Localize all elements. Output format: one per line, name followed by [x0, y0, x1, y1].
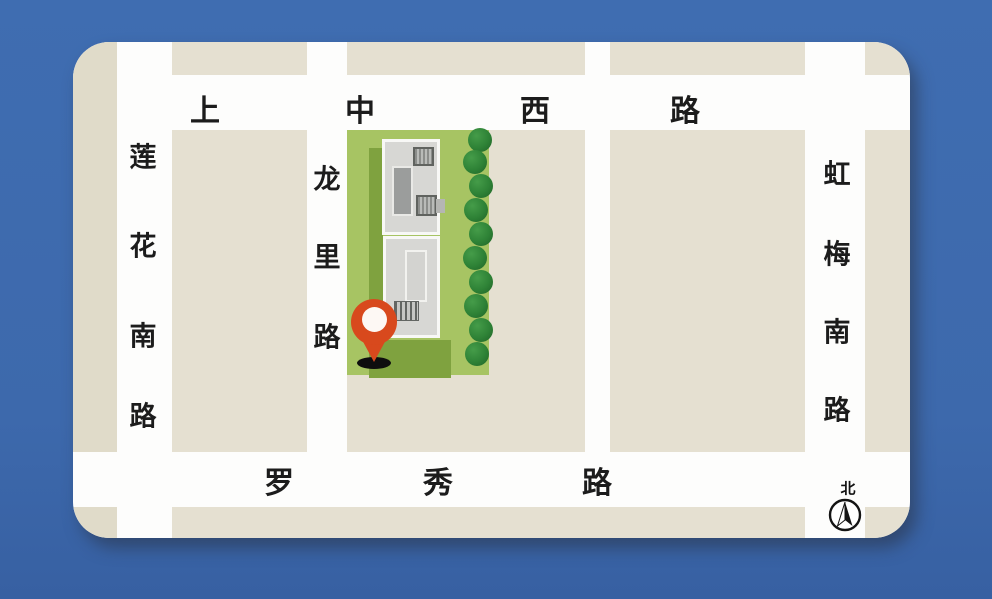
city-block — [172, 507, 805, 538]
page-background: 上 中 西 路 罗 秀 路 莲 花 南 路 龙 里 路 虹 梅 南 — [0, 0, 992, 599]
city-block — [610, 42, 805, 75]
compass-icon — [828, 498, 862, 532]
rooftop-structure — [405, 250, 427, 302]
road-char: 路 — [130, 395, 157, 434]
road-char: 路 — [824, 389, 851, 428]
road-char: 里 — [314, 236, 341, 275]
tree-icon — [464, 294, 488, 318]
road-char: 罗 — [264, 458, 294, 502]
road-char: 秀 — [423, 458, 453, 502]
city-block — [865, 42, 910, 75]
road-char: 南 — [824, 311, 851, 350]
road-char: 中 — [345, 86, 375, 130]
city-block — [172, 42, 307, 75]
road-char: 路 — [314, 316, 341, 355]
rooftop-structure — [392, 166, 413, 216]
city-block — [865, 507, 910, 538]
tree-icon — [468, 128, 492, 152]
road-char: 西 — [520, 86, 550, 130]
tree-icon — [469, 270, 493, 294]
city-block — [610, 130, 805, 452]
city-block — [172, 130, 307, 452]
road-char: 莲 — [130, 136, 157, 175]
tree-icon — [469, 174, 493, 198]
road-char: 虹 — [824, 153, 851, 192]
location-pin-hole — [362, 307, 387, 332]
tree-icon — [463, 150, 487, 174]
rooftop-vent-icon — [413, 147, 434, 166]
building-upper-wing — [382, 139, 440, 235]
tree-icon — [465, 342, 489, 366]
city-block — [865, 130, 910, 452]
tree-icon — [469, 318, 493, 342]
road-char: 龙 — [314, 158, 341, 197]
road-char: 南 — [130, 315, 157, 354]
road-char: 路 — [582, 458, 612, 502]
road-char: 花 — [130, 225, 157, 264]
road-char: 上 — [190, 86, 220, 130]
tree-icon — [469, 222, 493, 246]
road-char: 梅 — [824, 233, 851, 272]
compass-north-label: 北 — [840, 478, 855, 499]
rooftop-vent-icon — [416, 195, 437, 216]
tree-icon — [464, 198, 488, 222]
tree-icon — [463, 246, 487, 270]
city-block — [73, 42, 117, 452]
city-block — [347, 42, 585, 75]
city-block — [73, 507, 117, 538]
rooftop-unit — [436, 199, 445, 213]
road-char: 路 — [670, 86, 700, 130]
map-card: 上 中 西 路 罗 秀 路 莲 花 南 路 龙 里 路 虹 梅 南 — [73, 42, 910, 538]
rooftop-grill-icon — [394, 301, 419, 321]
